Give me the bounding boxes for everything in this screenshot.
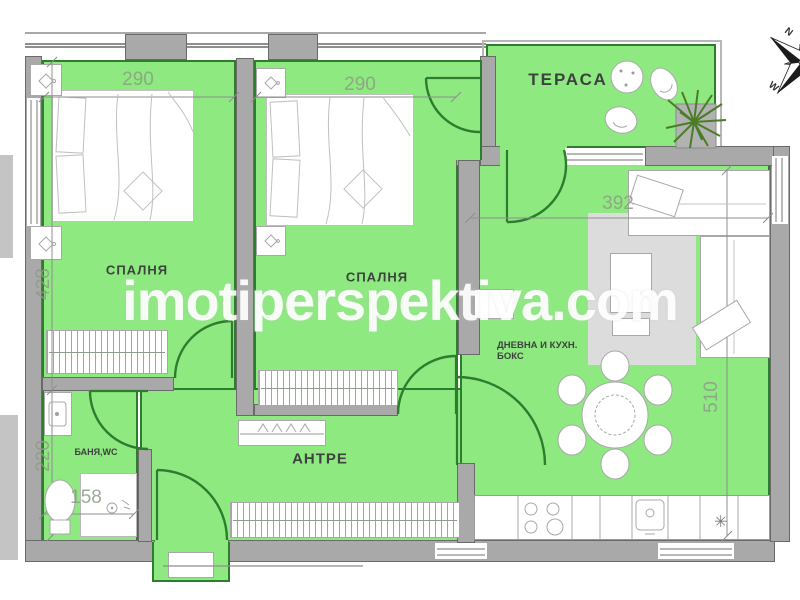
bed-bedroom-2	[266, 94, 414, 226]
terrace-door-passage	[500, 146, 567, 166]
wardrobe-bedroom-2	[258, 370, 398, 406]
label-living: ДНЕВНА И КУХН. БОКС	[497, 340, 577, 362]
wardrobe-bedroom-1	[46, 330, 168, 374]
label-living-line1: ДНЕВНА И КУХН.	[497, 340, 577, 351]
bath-sink	[44, 392, 72, 436]
dim-bathroom-width: 158	[70, 487, 102, 509]
dim-bedroom1-height: 428	[33, 268, 55, 300]
vent-box	[30, 64, 62, 96]
label-hall: АНТРЕ	[292, 451, 348, 468]
vent-box	[256, 68, 286, 98]
wardrobe-rail	[233, 520, 457, 521]
pillow	[56, 96, 87, 153]
dim-bathroom-height: 220	[33, 440, 55, 472]
room-bedroom-2-alcove	[456, 60, 482, 160]
window-bedroom1-left	[27, 98, 40, 226]
label-bedroom-2: СПАЛНЯ	[346, 270, 408, 285]
bed-bedroom-1	[52, 90, 194, 222]
balcony-pillar-1	[125, 34, 187, 60]
window-kitchen-bottom	[658, 543, 734, 559]
kitchen-counter	[474, 495, 770, 540]
pillow	[270, 100, 301, 157]
kitchen-cabinet	[474, 289, 514, 319]
entrance-mat	[168, 552, 214, 578]
compass-rose: N W	[746, 6, 800, 118]
dim-bedroom1-width: 290	[122, 69, 154, 91]
wall-terrace-bottom-right	[645, 146, 774, 166]
room-terrace	[486, 44, 716, 148]
label-bedroom-1: СПАЛНЯ	[106, 263, 168, 278]
wardrobe-hall-bottom	[230, 502, 460, 538]
wall-bedroom2-living	[458, 160, 480, 355]
window-living-right	[772, 156, 788, 224]
window-terrace-living	[565, 148, 645, 165]
wall-bottom-left	[25, 540, 155, 562]
wall-between-bedrooms	[236, 58, 254, 416]
wardrobe-rail	[49, 352, 165, 353]
dim-living-width: 392	[602, 193, 634, 215]
floor-plan: ✳	[0, 0, 800, 600]
side-table	[612, 318, 650, 336]
dim-living-height: 510	[701, 381, 723, 413]
label-bathroom: БАНЯ,WC	[74, 447, 117, 457]
vent-box	[256, 226, 286, 256]
sofa-back	[628, 170, 770, 236]
compass-west-label: W	[766, 80, 781, 95]
wall-bedroom1-bottom	[42, 377, 174, 391]
coat-rack-hall	[238, 420, 326, 446]
sofa-side	[700, 236, 770, 358]
exterior-wall-stub-lower	[0, 415, 18, 560]
pillow	[56, 154, 87, 213]
blanket-fold	[343, 169, 383, 209]
balcony-edge	[25, 32, 486, 48]
vent-box	[30, 226, 62, 260]
exterior-wall-stub-upper	[0, 155, 13, 258]
pillow	[270, 158, 301, 217]
balcony-pillar-2	[268, 34, 318, 60]
blanket-fold	[123, 171, 163, 211]
dim-bedroom2-width: 290	[344, 74, 376, 96]
wall-bathroom-hall	[138, 449, 152, 542]
compass-north-label: N	[782, 26, 794, 39]
label-living-line2: БОКС	[497, 351, 577, 362]
window-hall-bottom	[435, 543, 487, 559]
label-terrace: ТЕРАСА	[528, 70, 608, 90]
wardrobe-rail	[261, 388, 395, 389]
coffee-table	[610, 253, 652, 313]
